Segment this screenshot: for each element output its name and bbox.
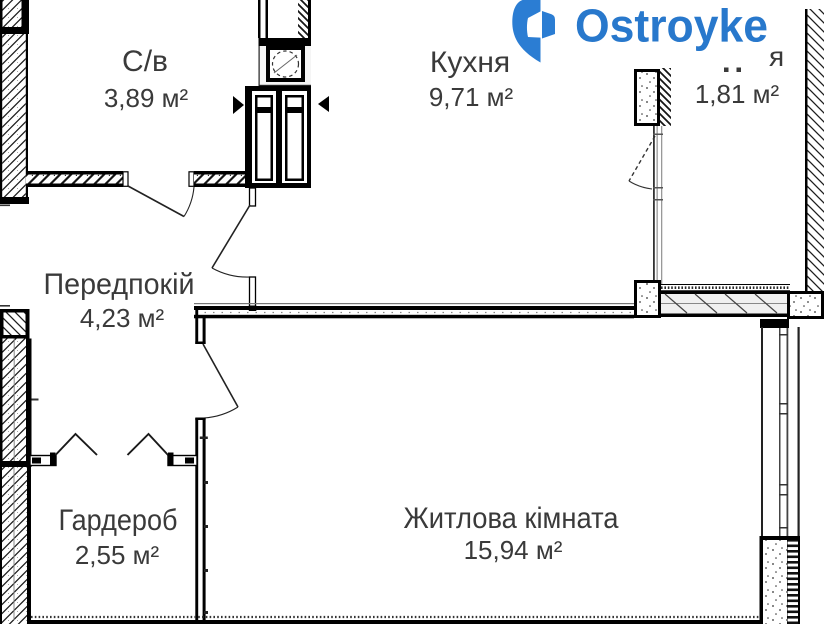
svg-text:Передпокій: Передпокій xyxy=(44,268,195,301)
svg-text:9,71 м²: 9,71 м² xyxy=(429,82,514,112)
svg-text:Кухня: Кухня xyxy=(430,46,510,79)
svg-text:я: я xyxy=(769,41,784,72)
svg-text:Житлова кімната: Житлова кімната xyxy=(404,502,619,535)
svg-text:15,94 м²: 15,94 м² xyxy=(464,535,563,565)
svg-text:Ostroyke: Ostroyke xyxy=(575,0,768,52)
svg-text:1,81 м²: 1,81 м² xyxy=(695,79,780,109)
svg-text:3,89 м²: 3,89 м² xyxy=(104,83,189,113)
svg-text:С/в: С/в xyxy=(122,45,168,78)
svg-text:2,55 м²: 2,55 м² xyxy=(75,540,160,570)
svg-text:4,23 м²: 4,23 м² xyxy=(80,303,165,333)
svg-text:Гардероб: Гардероб xyxy=(59,504,178,537)
